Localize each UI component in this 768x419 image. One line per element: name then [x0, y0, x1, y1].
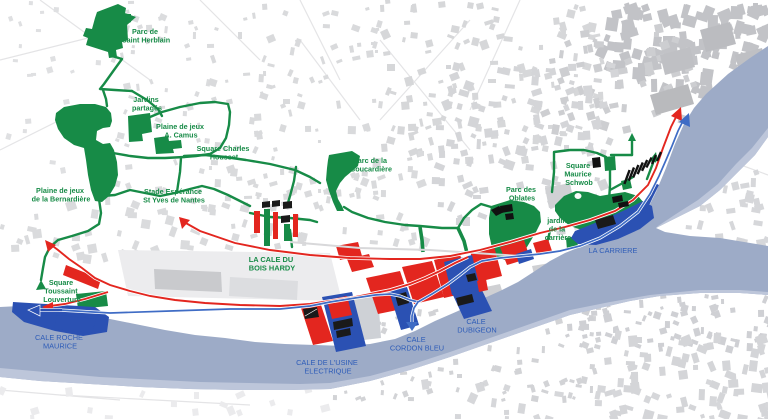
svg-text:Stade Espérance St Yves de Nan: Stade Espérance St Yves de Nantes — [143, 187, 205, 205]
svg-text:Plaine de jeux de la Bernardiè: Plaine de jeux de la Bernardière — [32, 186, 91, 204]
svg-text:Jardins partagés: Jardins partagés — [132, 95, 162, 113]
svg-text:Parc des Oblates: Parc des Oblates — [506, 185, 538, 203]
svg-text:Square Toussaint Louverture: Square Toussaint Louverture — [43, 278, 81, 304]
svg-text:CALE DE L'USINE ELECTRIQUE: CALE DE L'USINE ELECTRIQUE — [296, 358, 360, 376]
svg-text:Parc de la Boucardière: Parc de la Boucardière — [350, 156, 392, 174]
svg-text:LA CARRIERE: LA CARRIERE — [589, 246, 638, 255]
svg-text:Square Maurice Schwob: Square Maurice Schwob — [564, 161, 593, 187]
svg-text:LA CALE DU BOIS HARDY: LA CALE DU BOIS HARDY — [249, 255, 296, 273]
